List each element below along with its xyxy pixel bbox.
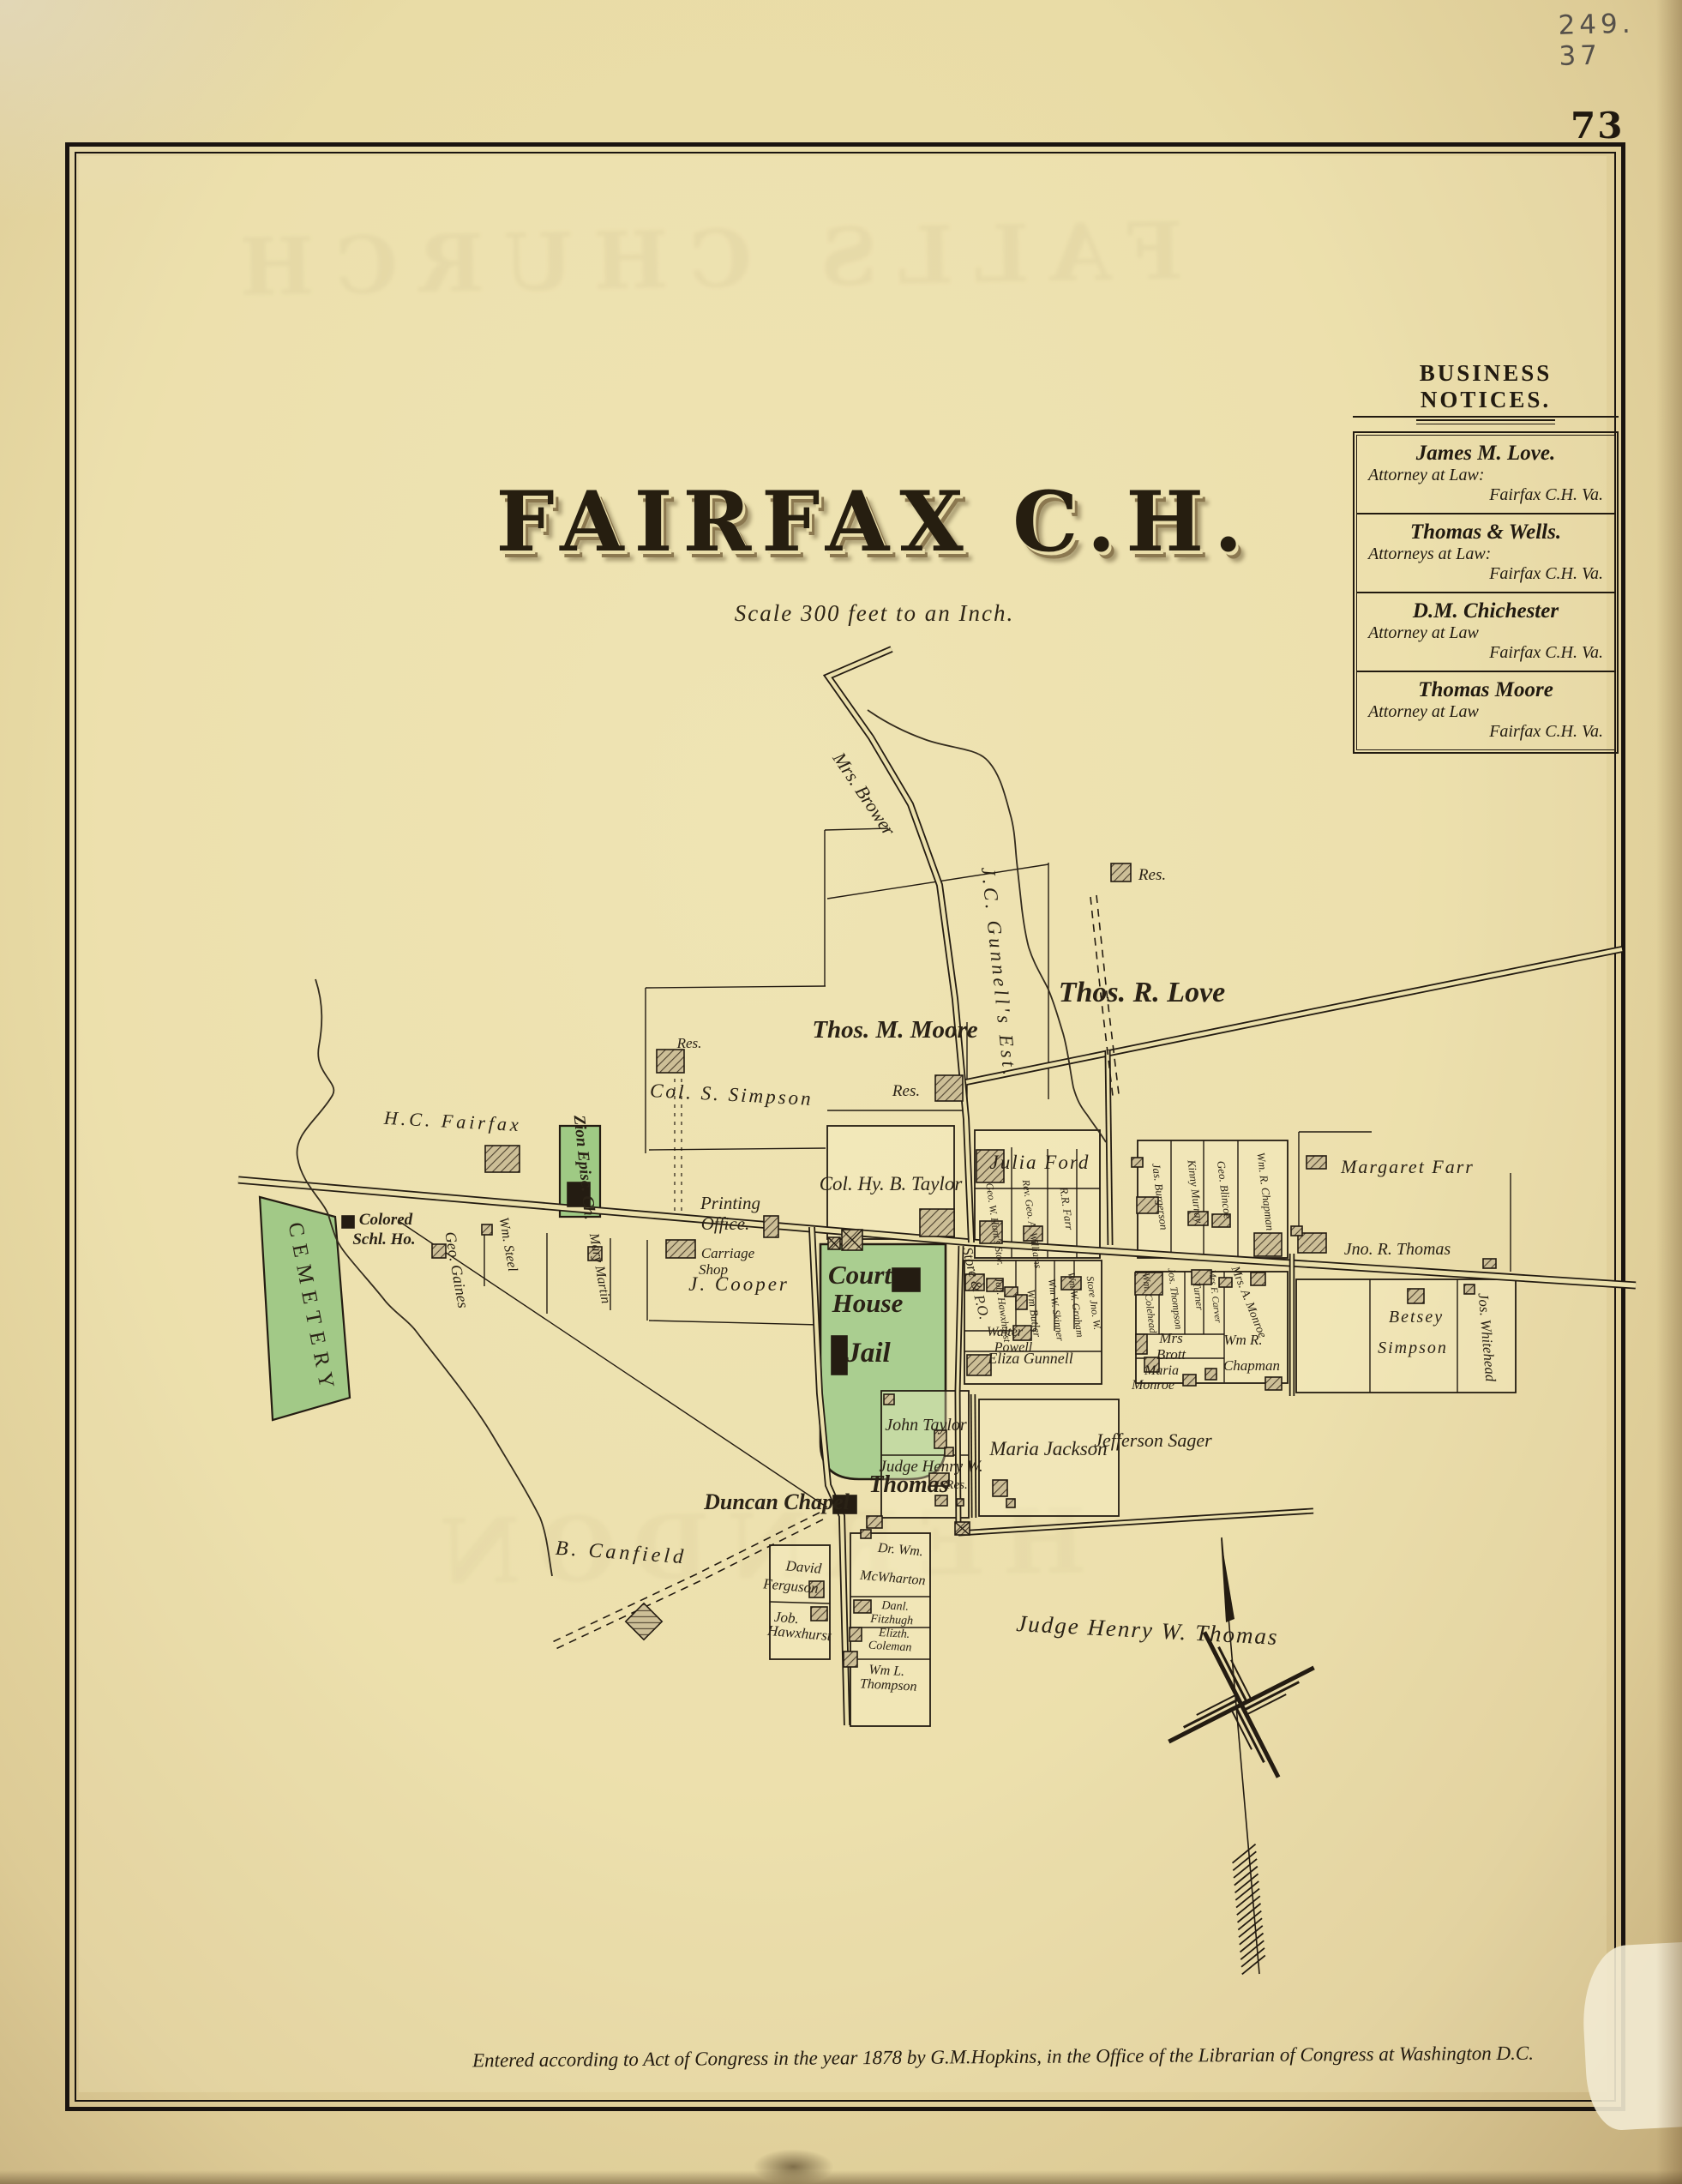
paper-edge-shade — [1656, 0, 1682, 2184]
notice-entry: Thomas & Wells. Attorneys at Law: Fairfa… — [1357, 514, 1614, 593]
notice-name: D.M. Chichester — [1365, 599, 1607, 623]
notice-location: Fairfax C.H. Va. — [1365, 722, 1607, 742]
notice-name: Thomas Moore — [1365, 678, 1607, 702]
notice-occupation: Attorney at Law: — [1365, 466, 1607, 485]
business-notices: BUSINESS NOTICES. James M. Love. Attorne… — [1353, 360, 1619, 754]
map-title: FAIRFAX C.H. — [480, 473, 1269, 570]
notice-location: Fairfax C.H. Va. — [1365, 564, 1607, 584]
notice-location: Fairfax C.H. Va. — [1365, 485, 1607, 505]
heading-rule — [1416, 419, 1554, 424]
page-number: 73 — [1571, 105, 1624, 147]
notice-occupation: Attorney at Law — [1365, 623, 1607, 643]
notice-name: Thomas & Wells. — [1365, 520, 1607, 544]
notice-entry: D.M. Chichester Attorney at Law Fairfax … — [1357, 593, 1614, 672]
notice-location: Fairfax C.H. Va. — [1365, 643, 1607, 663]
business-notices-box: James M. Love. Attorney at Law: Fairfax … — [1353, 431, 1619, 754]
atlas-page: FALLS CHURCH HERNDON 249. 37 73 Mrs. Bro… — [0, 0, 1682, 2184]
notice-occupation: Attorney at Law — [1365, 702, 1607, 722]
paper-edge-shade — [0, 2170, 1682, 2184]
business-notices-heading: BUSINESS NOTICES. — [1353, 360, 1619, 418]
notice-entry: James M. Love. Attorney at Law: Fairfax … — [1357, 436, 1614, 514]
notice-entry: Thomas Moore Attorney at Law Fairfax C.H… — [1357, 672, 1614, 749]
map-scale-note: Scale 300 feet to an Inch. — [600, 600, 1149, 627]
notice-occupation: Attorneys at Law: — [1365, 544, 1607, 564]
notice-name: James M. Love. — [1365, 442, 1607, 466]
